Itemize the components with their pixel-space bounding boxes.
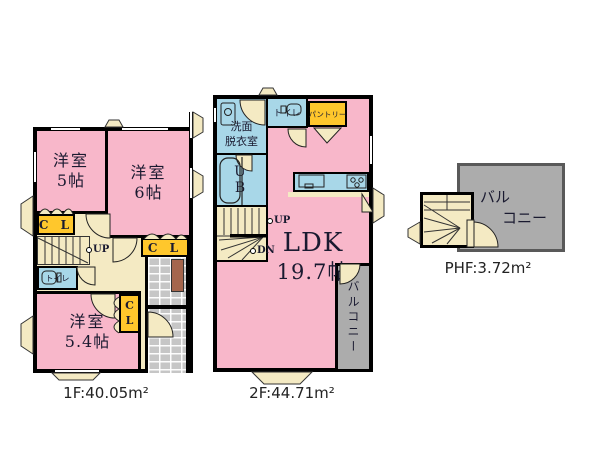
washroom-label-1: 洗面 (231, 120, 253, 134)
balcony-phf-label-1: バル (460, 190, 562, 205)
toilet-2f-label: トイレ (273, 106, 300, 119)
window (122, 127, 168, 131)
unit-bath-label: U B (217, 164, 266, 196)
toilet-2f: トイレ (268, 99, 308, 128)
dn-text: DN (257, 245, 275, 256)
entrance-door-brown (171, 259, 184, 292)
floor-1f-area-text: 1F:40.05m² (63, 384, 149, 402)
washroom-label-2: 脱衣室 (225, 135, 258, 149)
balcony-2f-label: バルコニー (345, 280, 362, 355)
room-western-6: 洋室 6帖 (108, 131, 189, 238)
window (189, 168, 193, 198)
floor-1f-area-label: 1F:40.05m² (36, 384, 176, 402)
window (369, 136, 373, 164)
room-western-6-name: 洋室 (130, 163, 166, 183)
unit-bath-2f: U B (217, 155, 268, 207)
closet-1f-room6: C L (141, 238, 189, 257)
ldk-name: LDK (283, 230, 344, 256)
closet-1f-room54: C L (119, 294, 140, 333)
stairs-2f-dn-label: DN (257, 245, 275, 256)
stairs-phf (420, 192, 474, 248)
balcony-phf-label-2: コニー (460, 211, 562, 226)
entrance-wall (145, 305, 189, 309)
closet-label: C L (148, 241, 182, 255)
washroom-2f: 洗面 脱衣室 (217, 99, 268, 155)
toilet-1f-label: トイレ (46, 273, 70, 284)
closet-l: L (126, 314, 134, 328)
ldk-room-label: LDK 19.7帖 (258, 230, 368, 283)
up-text: UP (274, 215, 290, 226)
room-western-5-size: 5帖 (57, 171, 85, 191)
closet-1f-room5: C L (37, 214, 75, 235)
room-western-6-size: 6帖 (134, 183, 162, 203)
pantry-2f: パントリー (308, 101, 347, 127)
floor-phf-area-text: PHF:3.72m² (445, 259, 532, 277)
up-text: UP (93, 244, 109, 255)
room-western-54-name: 洋室 (69, 312, 105, 332)
stairs-2f-up-label: UP (274, 215, 290, 226)
room-western-5-name: 洋室 (53, 151, 89, 171)
ldk-size: 19.7帖 (277, 262, 350, 283)
floor-2f-area-text: 2F:44.71m² (249, 384, 335, 402)
window (213, 108, 217, 122)
stairs-1f (37, 236, 90, 265)
closet-c: C (125, 299, 134, 313)
kitchen-ledge (288, 192, 369, 197)
room-western-5: 洋室 5帖 (37, 131, 108, 214)
window (51, 127, 80, 131)
floor-phf-area-label: PHF:3.72m² (423, 259, 553, 277)
stairs-1f-up-label: UP (93, 244, 109, 255)
closet-label: C L (39, 218, 73, 232)
window (55, 369, 99, 373)
pantry-label: パントリー (309, 109, 347, 120)
room-western-54-size: 5.4帖 (65, 332, 110, 352)
kitchen-counter (293, 172, 369, 192)
window (189, 112, 193, 138)
toilet-1f: トイレ (37, 266, 78, 290)
floor-plan: 洋室 5帖 洋室 6帖 C L トイレ 洋室 5.4帖 C L C L 洗面 脱… (0, 0, 600, 450)
floor-2f-area-label: 2F:44.71m² (222, 384, 362, 402)
window (33, 152, 37, 182)
